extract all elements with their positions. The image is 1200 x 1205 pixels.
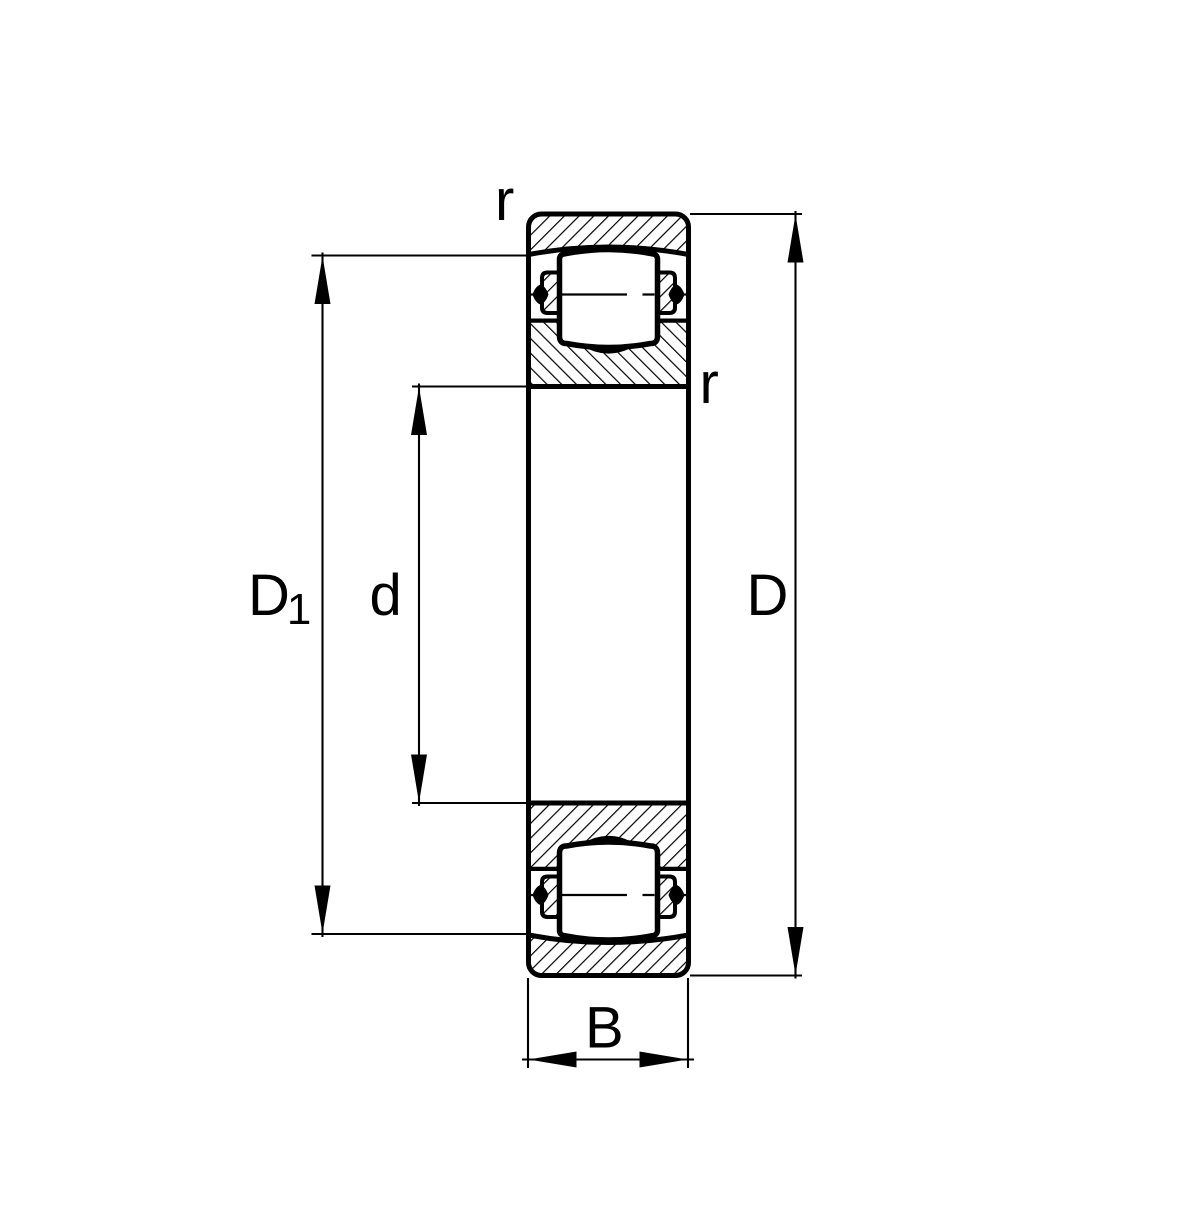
svg-text:D: D bbox=[747, 563, 789, 628]
svg-text:B: B bbox=[585, 996, 624, 1061]
svg-text:r: r bbox=[700, 351, 719, 416]
svg-text:d: d bbox=[370, 563, 402, 628]
svg-text:r: r bbox=[495, 168, 514, 233]
